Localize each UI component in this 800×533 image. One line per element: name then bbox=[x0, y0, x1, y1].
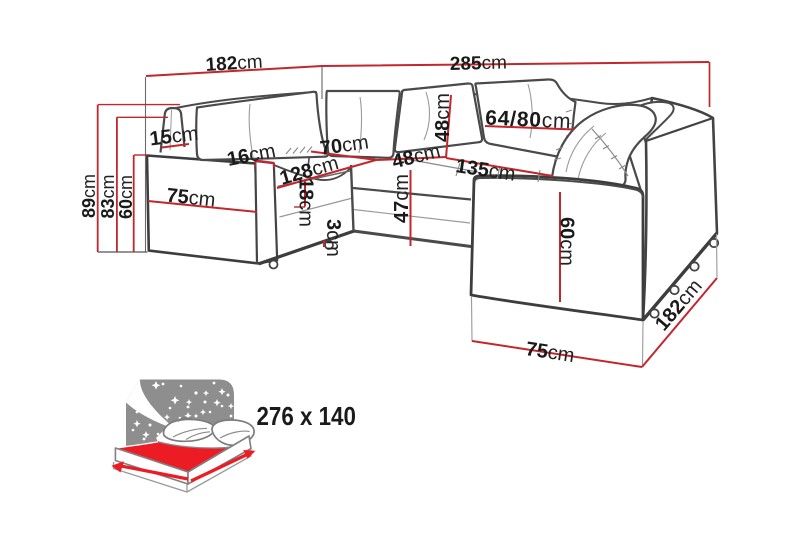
svg-text:15cm: 15cm bbox=[148, 123, 199, 151]
svg-text:48cm: 48cm bbox=[432, 93, 454, 142]
svg-text:3cm: 3cm bbox=[322, 219, 344, 257]
svg-text:64/80cm: 64/80cm bbox=[485, 107, 572, 134]
svg-text:75cm: 75cm bbox=[524, 338, 576, 367]
svg-text:89cm: 89cm bbox=[79, 174, 99, 218]
svg-text:47cm: 47cm bbox=[391, 174, 413, 223]
svg-text:135cm: 135cm bbox=[454, 155, 517, 186]
svg-text:285cm: 285cm bbox=[450, 53, 508, 75]
svg-text:18cm: 18cm bbox=[295, 178, 317, 227]
svg-text:60cm: 60cm bbox=[116, 175, 136, 219]
svg-text:276 x 140: 276 x 140 bbox=[257, 402, 356, 431]
svg-text:60cm: 60cm bbox=[556, 217, 578, 266]
svg-text:182cm: 182cm bbox=[205, 52, 263, 76]
svg-text:83cm: 83cm bbox=[98, 174, 118, 218]
